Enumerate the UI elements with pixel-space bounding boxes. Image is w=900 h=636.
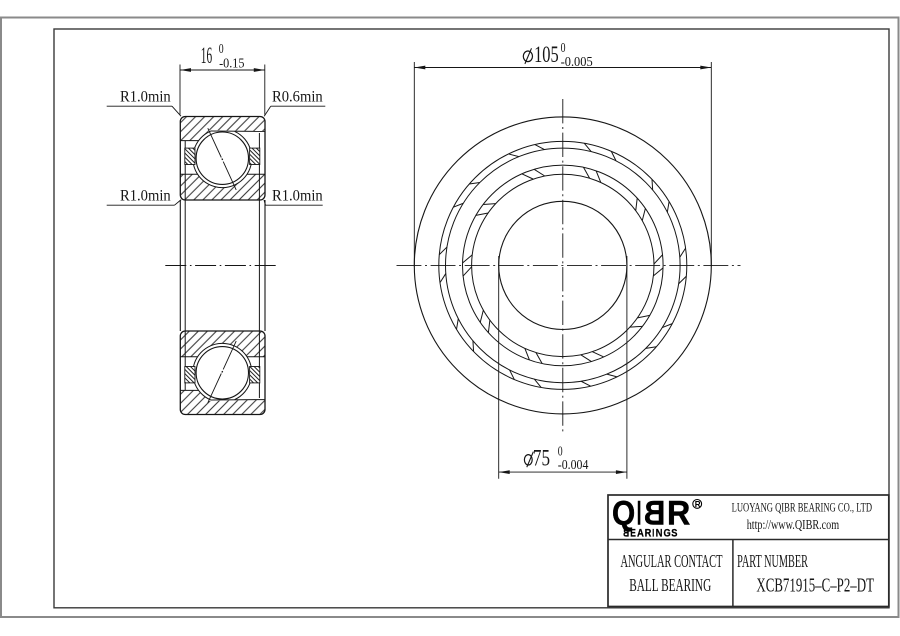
svg-text:-0.005: -0.005 [561,53,593,69]
svg-text:R: R [645,528,652,540]
svg-text:http://www.QIBR.com: http://www.QIBR.com [747,518,839,533]
svg-text:R: R [695,499,701,509]
svg-text:I: I [652,527,654,539]
svg-text:I: I [637,494,641,532]
svg-text:Q: Q [612,494,635,532]
svg-text:R1.0min: R1.0min [120,187,171,205]
svg-text:R1.0min: R1.0min [272,187,323,205]
svg-text:16: 16 [201,43,212,68]
svg-text:75: 75 [533,446,550,471]
svg-text:LUOYANG QIBR BEARING CO., LTD: LUOYANG QIBR BEARING CO., LTD [732,501,873,515]
svg-text:A: A [637,528,645,540]
svg-text:B: B [623,527,629,539]
svg-text:G: G [664,528,671,540]
svg-text:XCB71915–C–P2–DT: XCB71915–C–P2–DT [756,574,874,596]
svg-text:R1.0min: R1.0min [120,88,171,106]
svg-text:105: 105 [534,43,559,68]
svg-text:S: S [671,528,678,540]
svg-text:E: E [630,528,636,540]
svg-text:R0.6min: R0.6min [272,88,323,106]
svg-text:PART NUMBER: PART NUMBER [737,552,808,571]
svg-text:-0.15: -0.15 [219,55,245,71]
svg-text:-0.004: -0.004 [558,456,589,472]
svg-text:N: N [656,528,663,540]
svg-text:B: B [644,494,665,532]
svg-text:ANGULAR CONTACT: ANGULAR CONTACT [621,552,723,571]
svg-text:BALL BEARING: BALL BEARING [629,577,711,596]
